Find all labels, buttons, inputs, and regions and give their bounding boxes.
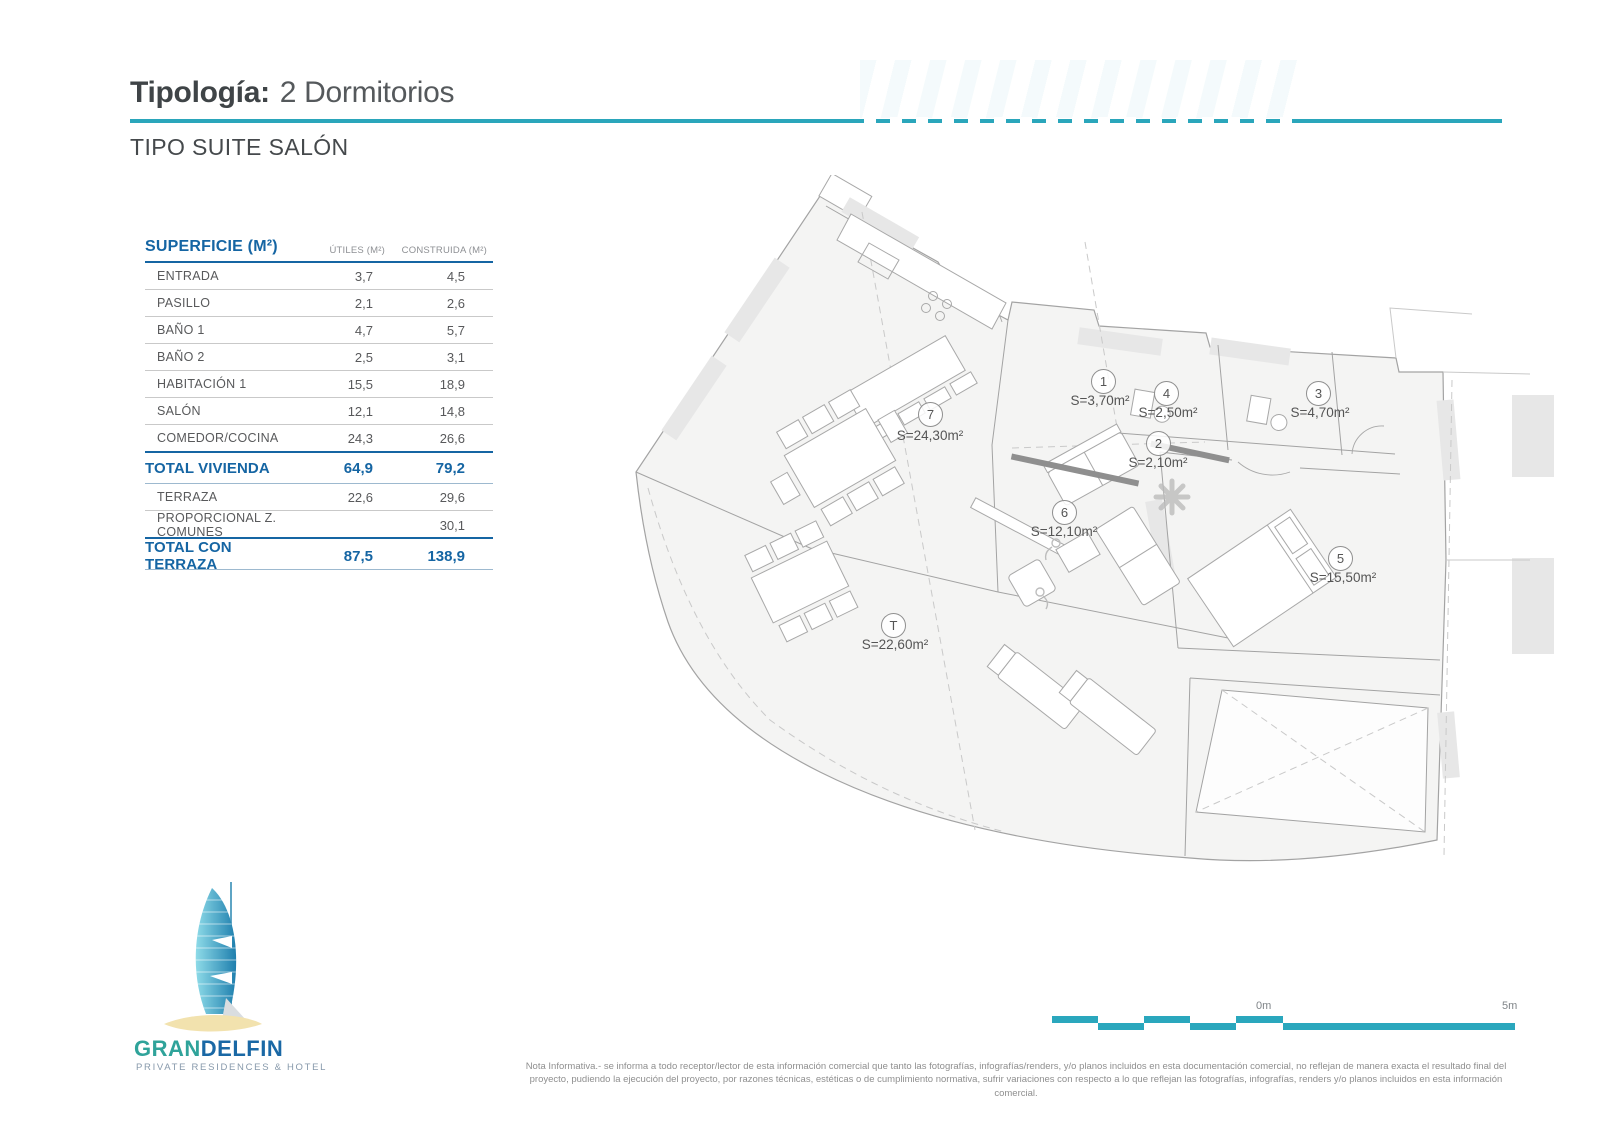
row-label: SALÓN [145, 404, 303, 418]
room-number: 2 [1146, 431, 1171, 456]
table-row: COMEDOR/COCINA 24,3 26,6 [145, 425, 493, 451]
row-construida: 18,9 [391, 377, 493, 392]
table-row: PASILLO 2,1 2,6 [145, 290, 493, 317]
surface-table: SUPERFICIE (M²) ÚTILES (M²) CONSTRUIDA (… [145, 238, 493, 570]
table-row: SALÓN 12,1 14,8 [145, 398, 493, 425]
table-row: ENTRADA 3,7 4,5 [145, 263, 493, 290]
watermark [860, 60, 1300, 118]
page-title: Tipología:2 Dormitorios [130, 76, 454, 110]
gran-delfin-logo-icon [150, 880, 270, 1045]
room-area: S=15,50m² [1273, 570, 1413, 585]
col-header-construida: CONSTRUIDA (M²) [391, 245, 493, 256]
room-number: 1 [1091, 369, 1116, 394]
table-row-total-terraza: TOTAL CON TERRAZA 87,5 138,9 [145, 537, 493, 570]
room-area: S=12,10m² [994, 524, 1134, 539]
title-label: Tipología: [130, 76, 270, 109]
row-construida: 3,1 [391, 350, 493, 365]
row-utiles: 15,5 [303, 377, 391, 392]
row-label: COMEDOR/COCINA [145, 431, 303, 445]
title-value: 2 Dormitorios [280, 76, 454, 109]
col-header-utiles: ÚTILES (M²) [303, 245, 391, 256]
table-row: PROPORCIONAL Z. COMUNES 30,1 [145, 511, 493, 537]
room-number: 3 [1306, 381, 1331, 406]
table-row: HABITACIÓN 1 15,5 18,9 [145, 371, 493, 398]
brand-gran: GRAN [134, 1036, 201, 1061]
row-label: TOTAL VIVIENDA [145, 460, 303, 477]
table-row-total-vivienda: TOTAL VIVIENDA 64,9 79,2 [145, 451, 493, 484]
row-construida: 29,6 [391, 490, 493, 505]
row-label: TOTAL CON TERRAZA [145, 539, 303, 573]
row-construida: 138,9 [391, 548, 493, 565]
room-number: 4 [1154, 381, 1179, 406]
row-utiles: 2,1 [303, 296, 391, 311]
row-utiles: 4,7 [303, 323, 391, 338]
scale-segment [1144, 1016, 1190, 1023]
row-label: TERRAZA [145, 490, 303, 504]
row-utiles: 22,6 [303, 490, 391, 505]
row-label: PROPORCIONAL Z. COMUNES [145, 511, 303, 539]
room-number: 6 [1052, 500, 1077, 525]
table-row: TERRAZA 22,6 29,6 [145, 484, 493, 511]
row-utiles: 87,5 [303, 548, 391, 565]
scale-segment [1190, 1023, 1236, 1030]
row-label: PASILLO [145, 296, 303, 310]
table-row: BAÑO 1 4,7 5,7 [145, 317, 493, 344]
scale-segment [1283, 1023, 1515, 1030]
row-label: BAÑO 1 [145, 323, 303, 337]
scale-segment [1052, 1016, 1098, 1023]
room-area: S=22,60m² [825, 637, 965, 652]
row-construida: 30,1 [391, 518, 493, 533]
room-number: T [881, 613, 906, 638]
brochure-page: Tipología:2 Dormitorios TIPO SUITE SALÓN… [0, 0, 1600, 1131]
scale-segment [1236, 1016, 1283, 1023]
room-number: 5 [1328, 546, 1353, 571]
scale-zero-label: 0m [1256, 1000, 1271, 1012]
brand-tagline: PRIVATE RESIDENCES & HOTEL [136, 1062, 327, 1073]
row-utiles: 12,1 [303, 404, 391, 419]
watermark-rule-dashes [850, 117, 1300, 125]
row-construida: 5,7 [391, 323, 493, 338]
row-utiles: 3,7 [303, 269, 391, 284]
row-construida: 4,5 [391, 269, 493, 284]
row-construida: 14,8 [391, 404, 493, 419]
row-construida: 79,2 [391, 460, 493, 477]
table-row: BAÑO 2 2,5 3,1 [145, 344, 493, 371]
row-label: BAÑO 2 [145, 350, 303, 364]
row-label: ENTRADA [145, 269, 303, 283]
table-header: SUPERFICIE (M²) ÚTILES (M²) CONSTRUIDA (… [145, 238, 493, 263]
legal-footnote: Nota Informativa.- se informa a todo rec… [520, 1060, 1512, 1100]
page-subtitle: TIPO SUITE SALÓN [130, 134, 349, 161]
row-utiles: 2,5 [303, 350, 391, 365]
row-construida: 2,6 [391, 296, 493, 311]
row-utiles: 64,9 [303, 460, 391, 477]
scale-segment [1098, 1023, 1144, 1030]
room-number: 7 [918, 402, 943, 427]
table-title: SUPERFICIE (M²) [145, 238, 303, 256]
row-label: HABITACIÓN 1 [145, 377, 303, 391]
room-area: S=2,10m² [1088, 455, 1228, 470]
room-area: S=2,50m² [1098, 405, 1238, 420]
room-area: S=24,30m² [860, 428, 1000, 443]
brand-delfin: DELFIN [201, 1036, 283, 1061]
row-utiles: 24,3 [303, 431, 391, 446]
scale-five-label: 5m [1502, 1000, 1517, 1012]
brand-wordmark: GRANDELFIN [134, 1036, 283, 1062]
row-construida: 26,6 [391, 431, 493, 446]
room-area: S=4,70m² [1250, 405, 1390, 420]
